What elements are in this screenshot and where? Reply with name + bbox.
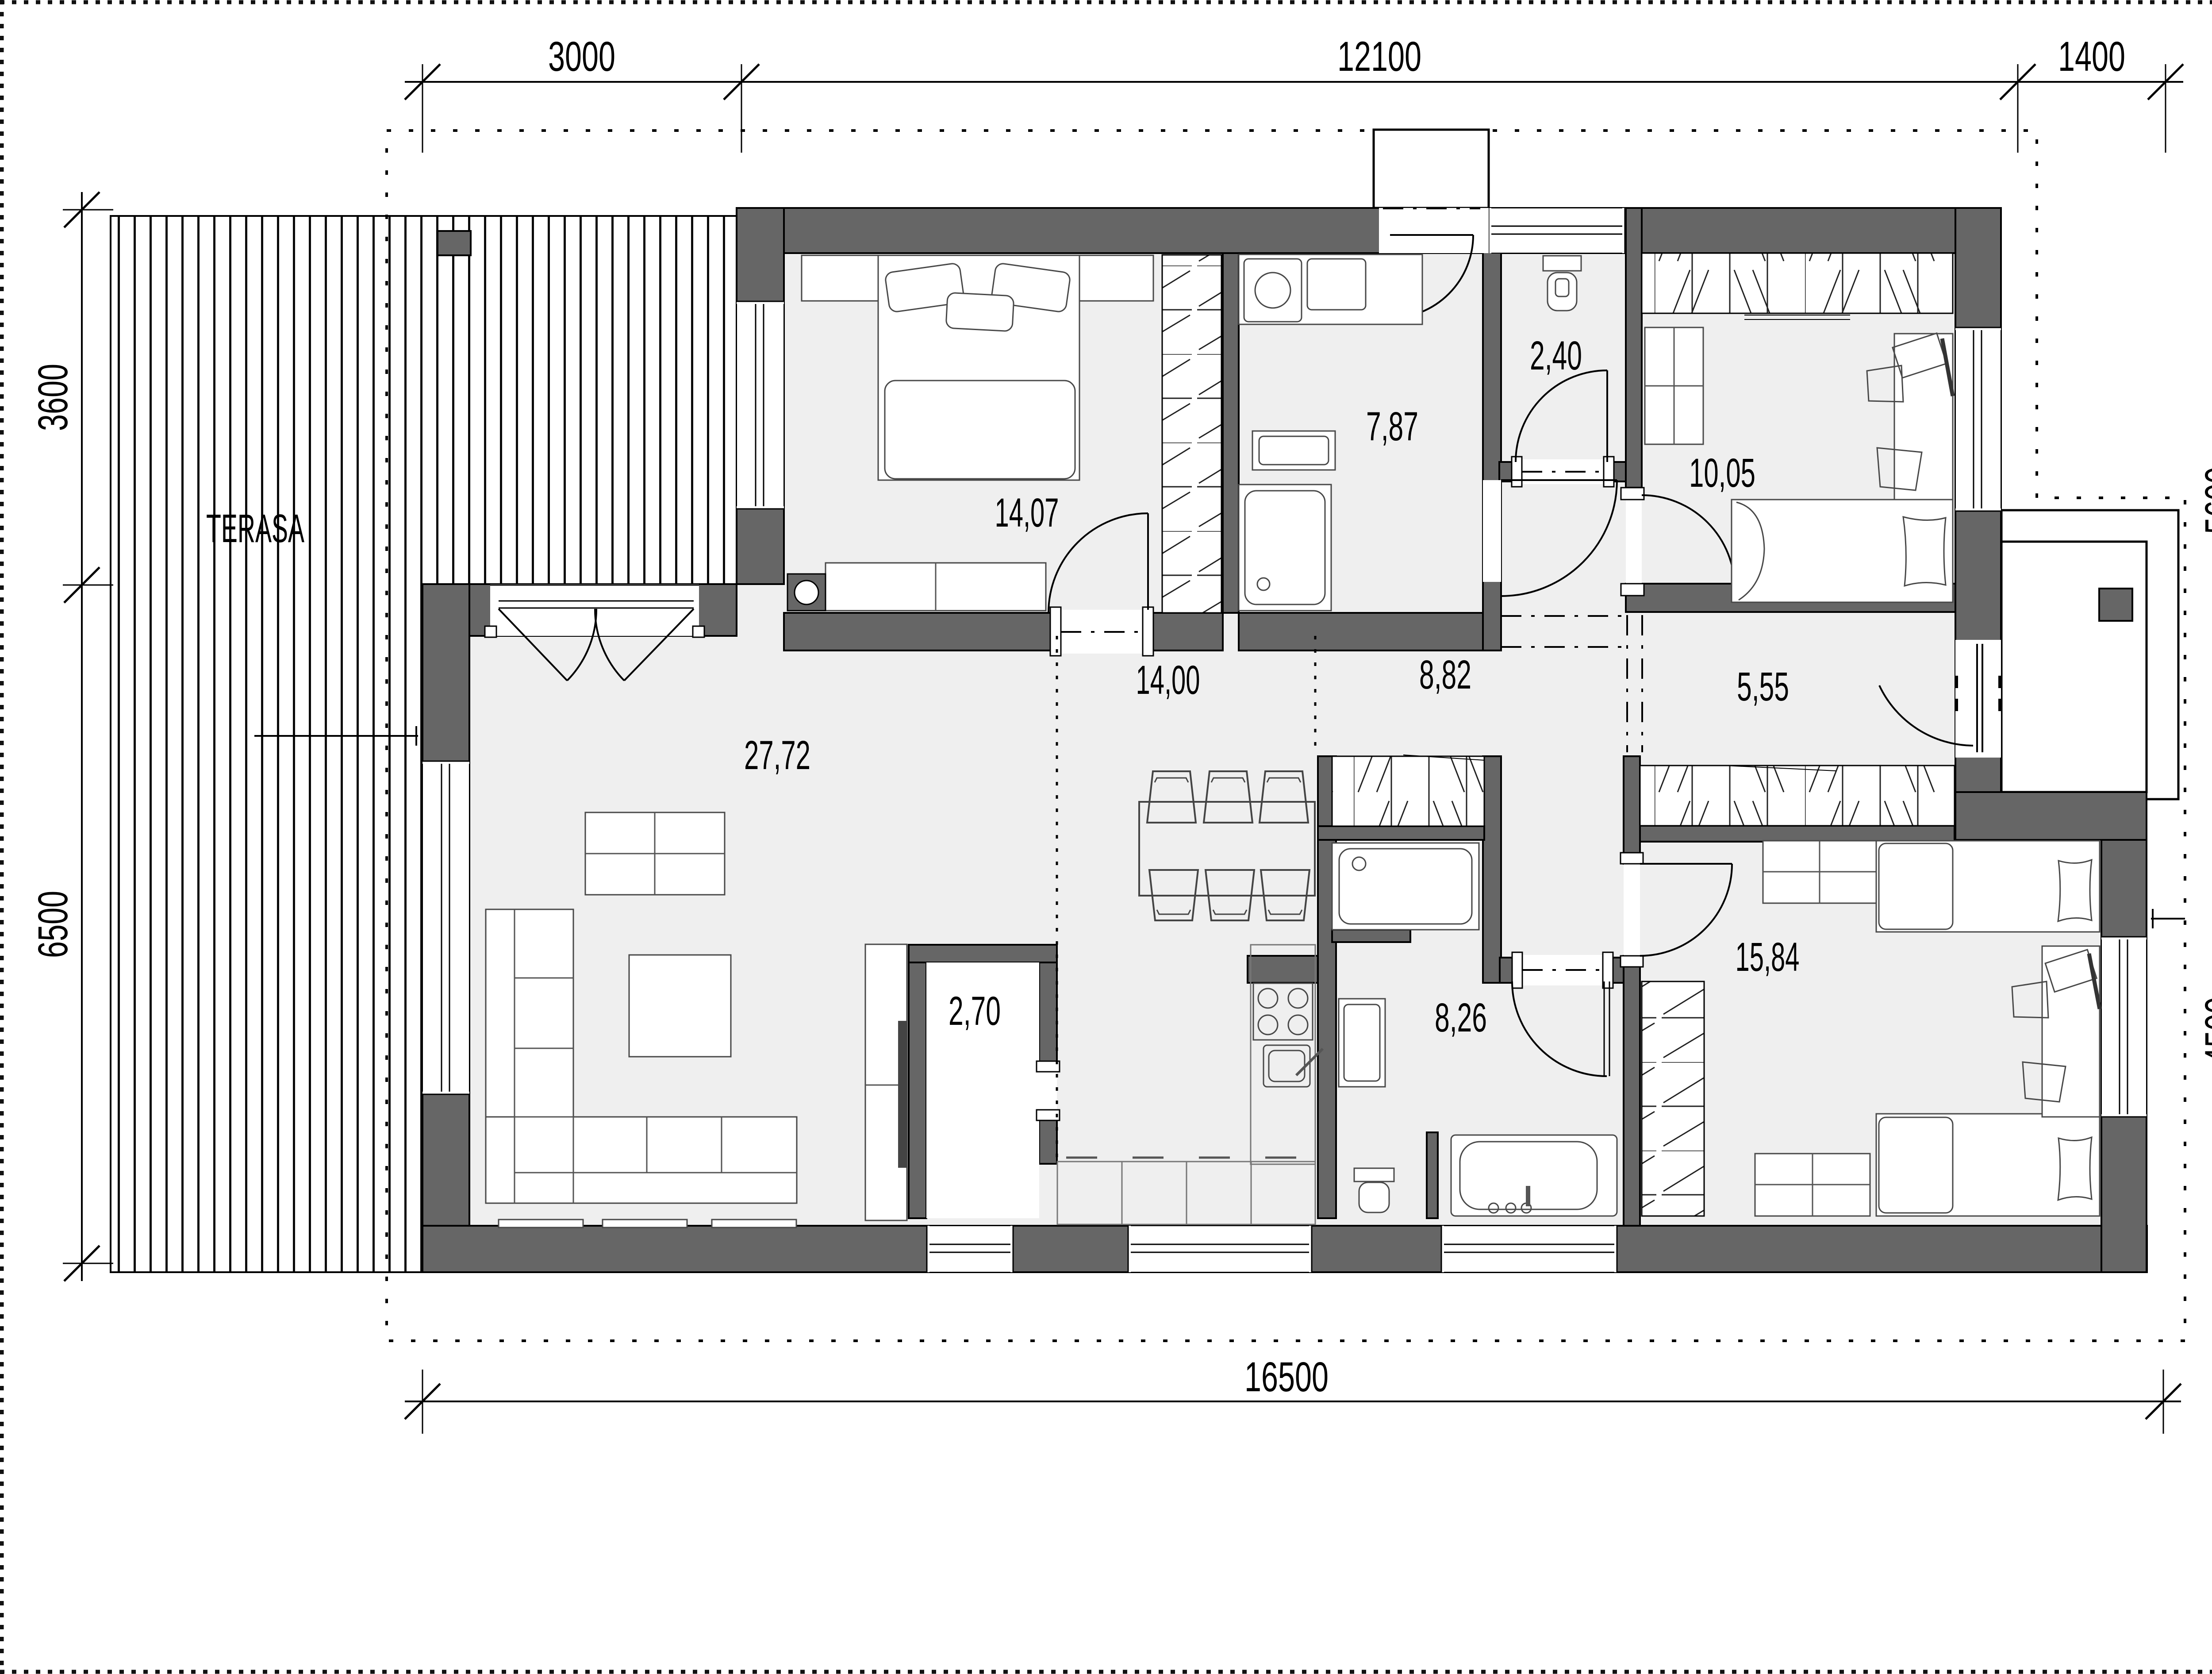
svg-text:16500: 16500 <box>1244 1354 1329 1401</box>
svg-text:12100: 12100 <box>1337 33 1421 80</box>
svg-text:27,72: 27,72 <box>744 733 810 778</box>
svg-text:5600: 5600 <box>2197 467 2212 534</box>
svg-text:7,87: 7,87 <box>1366 404 1418 449</box>
svg-text:14,07: 14,07 <box>995 490 1059 535</box>
svg-text:TERASA: TERASA <box>206 507 304 551</box>
svg-text:4500: 4500 <box>2197 997 2212 1064</box>
svg-text:2,70: 2,70 <box>949 989 1001 1034</box>
svg-text:10,05: 10,05 <box>1689 450 1755 496</box>
svg-text:14,00: 14,00 <box>1136 658 1200 703</box>
svg-text:6500: 6500 <box>30 891 77 958</box>
svg-text:15,84: 15,84 <box>1736 935 1800 980</box>
svg-text:1400: 1400 <box>2058 33 2125 80</box>
svg-text:3000: 3000 <box>548 33 615 80</box>
svg-text:3600: 3600 <box>30 364 77 431</box>
svg-text:5,55: 5,55 <box>1737 664 1789 709</box>
svg-text:8,26: 8,26 <box>1435 995 1487 1040</box>
svg-text:8,82: 8,82 <box>1419 652 1471 697</box>
svg-text:2,40: 2,40 <box>1530 333 1582 378</box>
